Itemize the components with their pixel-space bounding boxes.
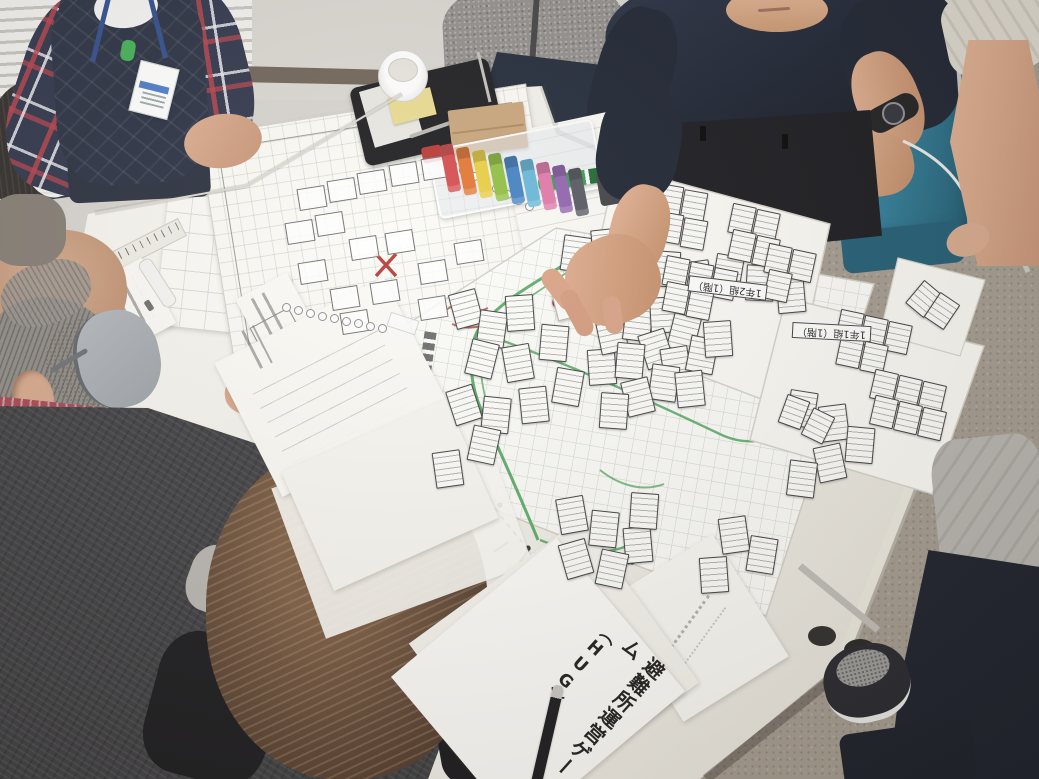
checklist-circle: [306, 309, 315, 318]
game-card: [467, 424, 502, 465]
workshop-photo: 避難所運営ゲーム （HUG） 1年2組（1階） 1年1組（1階）: [0, 0, 1039, 779]
floor-plan-room: [348, 235, 379, 261]
game-card: [464, 338, 500, 380]
floor-plan-room: [329, 285, 360, 311]
game-card: [674, 370, 706, 409]
game-card: [595, 548, 630, 589]
checklist-circle: [366, 322, 375, 331]
floor-plan-room: [356, 169, 387, 195]
checklist-circle: [354, 319, 363, 328]
floor-plan-room: [388, 161, 419, 187]
game-card: [786, 459, 818, 498]
game-card: [614, 342, 645, 380]
checklist-circle: [294, 306, 303, 315]
game-card: [432, 449, 465, 489]
floor-plan-room: [326, 177, 357, 203]
game-card: [551, 367, 585, 407]
game-card: [703, 320, 733, 358]
game-card: [518, 386, 550, 425]
floor-plan-room: [417, 259, 448, 285]
floor-plan-room: [314, 211, 345, 237]
game-card: [501, 343, 535, 383]
game-card: [745, 535, 778, 575]
evacuee-card: [917, 407, 947, 442]
floor-plan-room: [284, 219, 315, 245]
evacuee-card: [680, 217, 709, 251]
game-card: [718, 515, 751, 555]
checklist-circle: [330, 314, 339, 323]
floor-plan-room: [384, 229, 415, 255]
game-card: [505, 294, 535, 332]
room-label-text: 1年1組（1階）: [797, 325, 867, 340]
game-card: [844, 426, 875, 464]
game-card: [629, 492, 659, 530]
game-card: [699, 556, 729, 594]
checklist-circle: [282, 303, 291, 312]
checklist-circle: [318, 312, 327, 321]
checklist-circle: [378, 324, 387, 333]
floor-plan-room: [417, 295, 448, 321]
game-card: [599, 392, 629, 430]
game-card: [555, 495, 589, 535]
floor-plan-room: [296, 185, 327, 211]
game-card: [588, 510, 620, 549]
game-card: [538, 324, 569, 362]
floor-plan-room: [453, 239, 484, 265]
floor-plan-room: [297, 259, 328, 285]
floor-plan-room: [369, 279, 400, 305]
checklist-circle: [342, 317, 351, 326]
game-card: [445, 384, 483, 427]
